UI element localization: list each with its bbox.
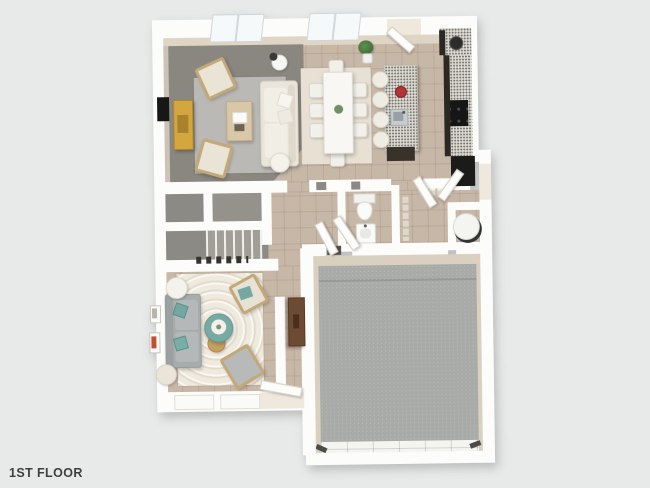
wall-tv — [157, 97, 169, 121]
dining-chair — [309, 123, 324, 138]
art-content — [151, 336, 156, 348]
floorplan — [0, 0, 650, 488]
coffee-table-book — [232, 112, 247, 123]
dining-table — [323, 72, 354, 154]
centerpiece — [334, 105, 343, 114]
wall-garage-top-a — [302, 244, 326, 256]
dining-chair — [352, 122, 367, 137]
garage-floor — [318, 264, 478, 442]
bar-stool — [372, 111, 389, 128]
hall-opening-floor — [285, 182, 311, 192]
sink-faucet — [402, 111, 405, 114]
cooktop — [450, 100, 468, 126]
window-sill-hall-left — [316, 182, 326, 190]
wire-shelf-vertical — [402, 195, 409, 241]
console-shelf-line — [177, 115, 188, 133]
island-sink — [390, 109, 408, 126]
island-base — [387, 147, 415, 161]
coffee-table-decor — [234, 124, 244, 131]
window-pane — [210, 14, 239, 42]
wall-water-heater-top — [447, 202, 489, 211]
pedestal-sink — [356, 223, 376, 243]
wall-art-red — [149, 332, 160, 353]
wall-garage-top-c — [456, 242, 492, 255]
media-console — [173, 100, 194, 150]
wall-garage-bottom — [306, 451, 495, 466]
den-sofa — [165, 294, 202, 368]
bar-stool — [372, 131, 389, 148]
dining-chair — [330, 152, 345, 167]
window-pane — [307, 13, 336, 41]
coffee-table — [226, 101, 253, 141]
wall-den-right — [275, 297, 286, 393]
hall-console-table — [288, 297, 306, 346]
den-chair-pillow — [237, 286, 253, 301]
wall-stair-half — [212, 221, 268, 231]
stair-nosing — [196, 256, 248, 264]
stair-landing — [209, 193, 261, 224]
bar-stool — [372, 71, 389, 88]
potted-plant-pot — [362, 53, 372, 63]
window-pane — [236, 14, 265, 42]
dining-chair — [309, 83, 324, 98]
den-window — [174, 395, 214, 411]
den-window — [220, 394, 260, 410]
sink-bowl — [360, 228, 371, 238]
entry-door-threshold — [479, 164, 492, 200]
art-content — [152, 308, 157, 318]
dining-chair — [352, 102, 367, 117]
console-shelf — [293, 314, 299, 328]
floor-plan-image: 1ST FLOOR — [0, 0, 650, 488]
window-pane — [333, 12, 362, 40]
sink-faucet — [364, 224, 367, 227]
floor-label: 1ST FLOOR — [9, 466, 83, 480]
tray-decor — [216, 324, 221, 329]
corner-counter-front — [439, 30, 445, 55]
dining-chair — [309, 103, 324, 118]
window-sill-hall-right — [351, 181, 360, 189]
wall-stair-right — [261, 193, 272, 245]
wall-art-small — [150, 305, 161, 323]
bar-stool — [372, 91, 389, 108]
wall-garage-top-b — [352, 242, 448, 255]
wall-powder-right — [391, 185, 400, 251]
floor-lamp-head — [269, 53, 277, 61]
fruit-bowl — [395, 86, 407, 98]
dining-chair — [352, 82, 367, 97]
stock-pot — [449, 36, 463, 50]
den-sofa-back — [166, 295, 174, 367]
